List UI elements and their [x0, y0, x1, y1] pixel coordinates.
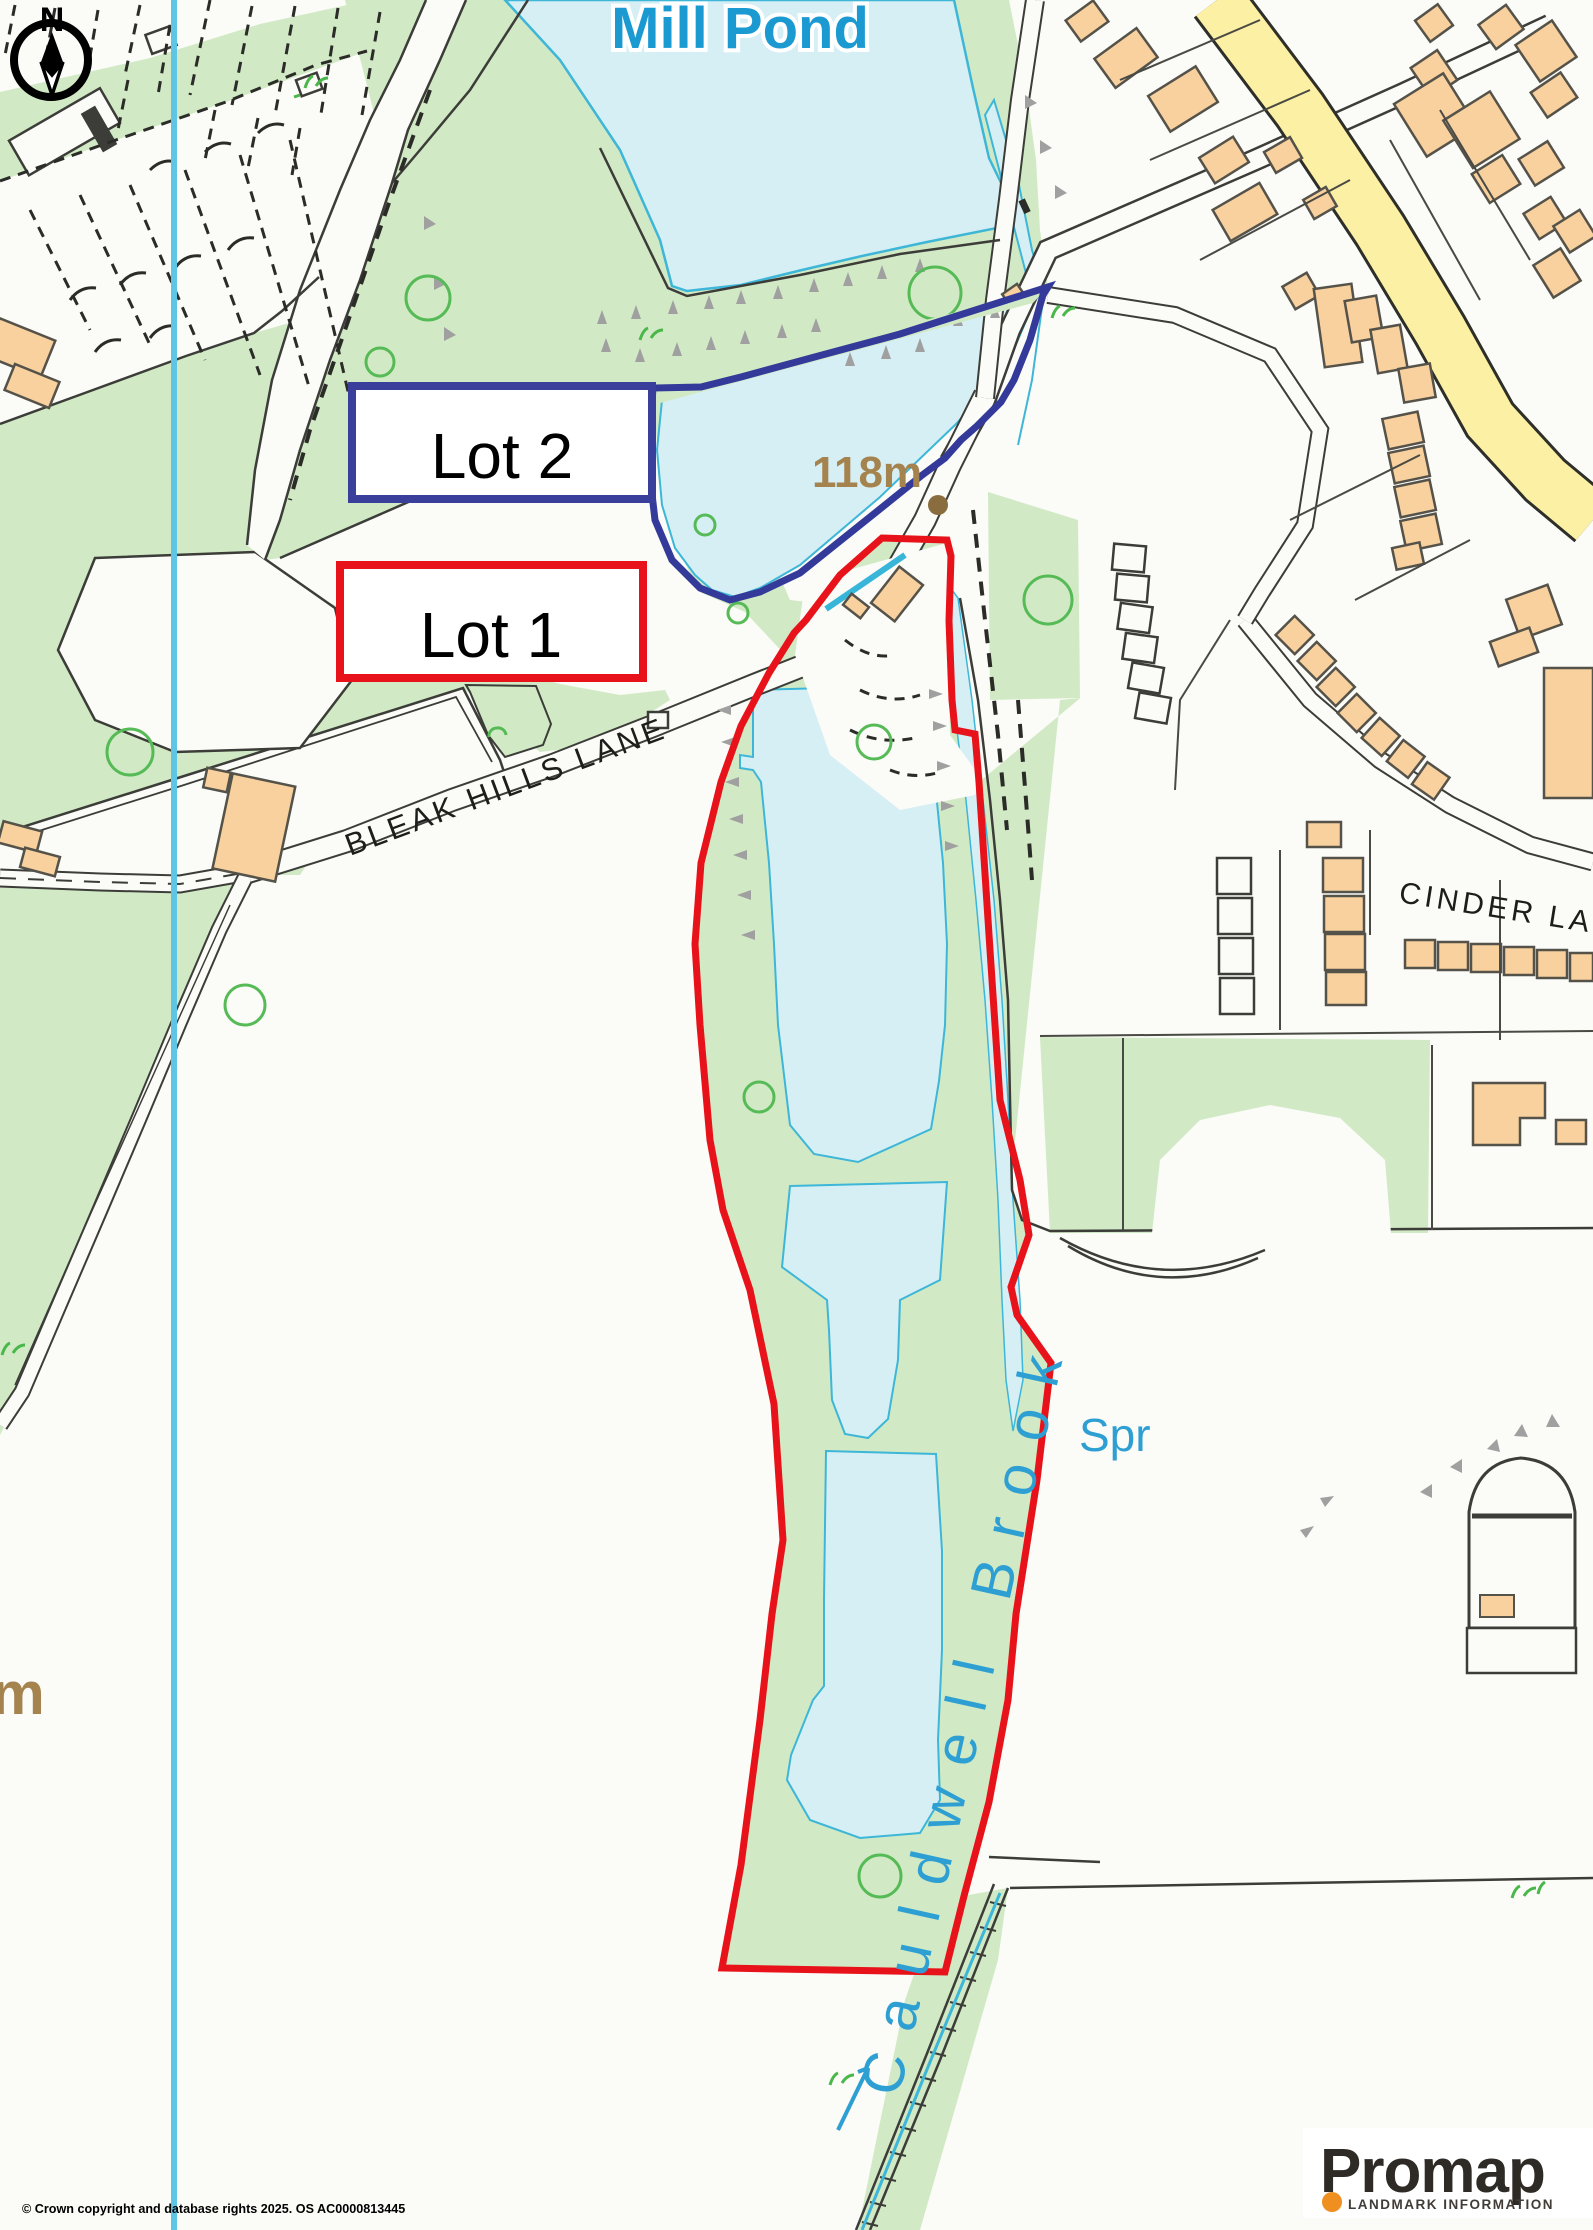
svg-text:LANDMARK INFORMATION: LANDMARK INFORMATION: [1348, 2197, 1554, 2212]
svg-text:Spr: Spr: [1079, 1409, 1151, 1461]
svg-text:© Crown copyright and database: © Crown copyright and database rights 20…: [22, 2202, 405, 2216]
svg-text:Lot 2: Lot 2: [431, 420, 573, 492]
svg-text:118m: 118m: [812, 448, 922, 497]
svg-text:Promap: Promap: [1320, 2137, 1545, 2206]
svg-text:Mill Pond: Mill Pond: [611, 0, 869, 61]
svg-text:0m: 0m: [0, 1660, 45, 1727]
svg-text:Lot 1: Lot 1: [420, 599, 562, 671]
